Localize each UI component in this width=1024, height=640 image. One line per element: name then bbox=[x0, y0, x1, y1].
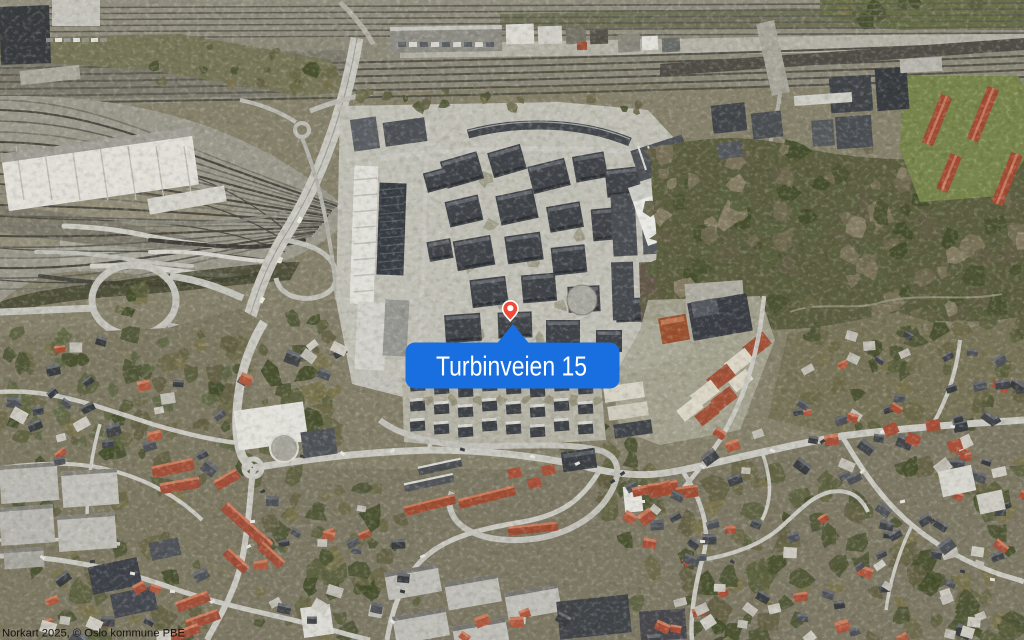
svg-text:Turbinveien 15: Turbinveien 15 bbox=[436, 351, 587, 382]
svg-text:Norkart 2025, © Oslo kommune P: Norkart 2025, © Oslo kommune PBE bbox=[2, 628, 185, 640]
